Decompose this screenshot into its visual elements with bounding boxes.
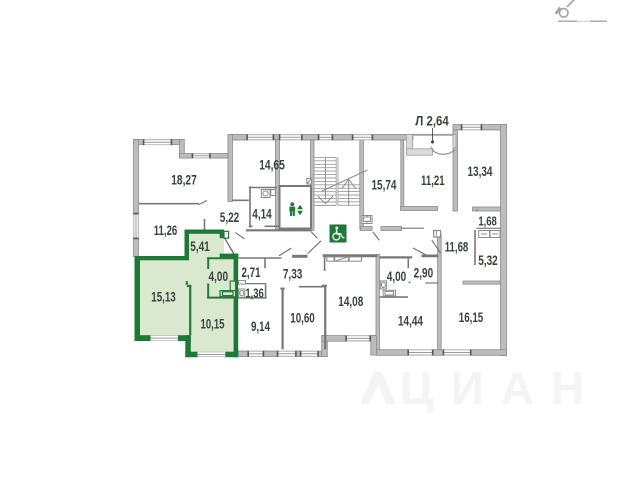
svg-text:18,27: 18,27 xyxy=(171,173,197,189)
svg-text:5,41: 5,41 xyxy=(190,239,210,255)
svg-text:4,14: 4,14 xyxy=(252,207,272,223)
svg-text:1,36: 1,36 xyxy=(245,287,264,301)
svg-text:2,71: 2,71 xyxy=(242,265,261,281)
svg-text:ЦИАН: ЦИАН xyxy=(400,362,601,414)
svg-text:11,26: 11,26 xyxy=(154,223,178,239)
svg-text:14,65: 14,65 xyxy=(259,158,285,174)
svg-text:15,74: 15,74 xyxy=(372,178,397,194)
svg-text:4,00: 4,00 xyxy=(209,269,229,285)
svg-text:2,90: 2,90 xyxy=(414,266,434,282)
svg-text:1,68: 1,68 xyxy=(478,215,497,229)
svg-text:5,32: 5,32 xyxy=(478,253,498,269)
svg-text:7,33: 7,33 xyxy=(283,267,303,283)
svg-text:10,60: 10,60 xyxy=(290,311,315,327)
svg-text:11,68: 11,68 xyxy=(445,240,469,256)
svg-text:14,44: 14,44 xyxy=(398,314,423,330)
svg-text:10,15: 10,15 xyxy=(201,317,225,333)
svg-text:13,34: 13,34 xyxy=(468,164,493,180)
svg-text:5,22: 5,22 xyxy=(220,210,240,226)
svg-text:14,08: 14,08 xyxy=(338,294,363,310)
svg-text:11,21: 11,21 xyxy=(421,173,445,189)
svg-text:16,15: 16,15 xyxy=(459,310,484,326)
svg-text:4,00: 4,00 xyxy=(387,269,407,285)
svg-text:15,13: 15,13 xyxy=(151,290,176,306)
svg-text:Л 2,64: Л 2,64 xyxy=(415,113,449,129)
svg-text:9,14: 9,14 xyxy=(251,319,270,335)
